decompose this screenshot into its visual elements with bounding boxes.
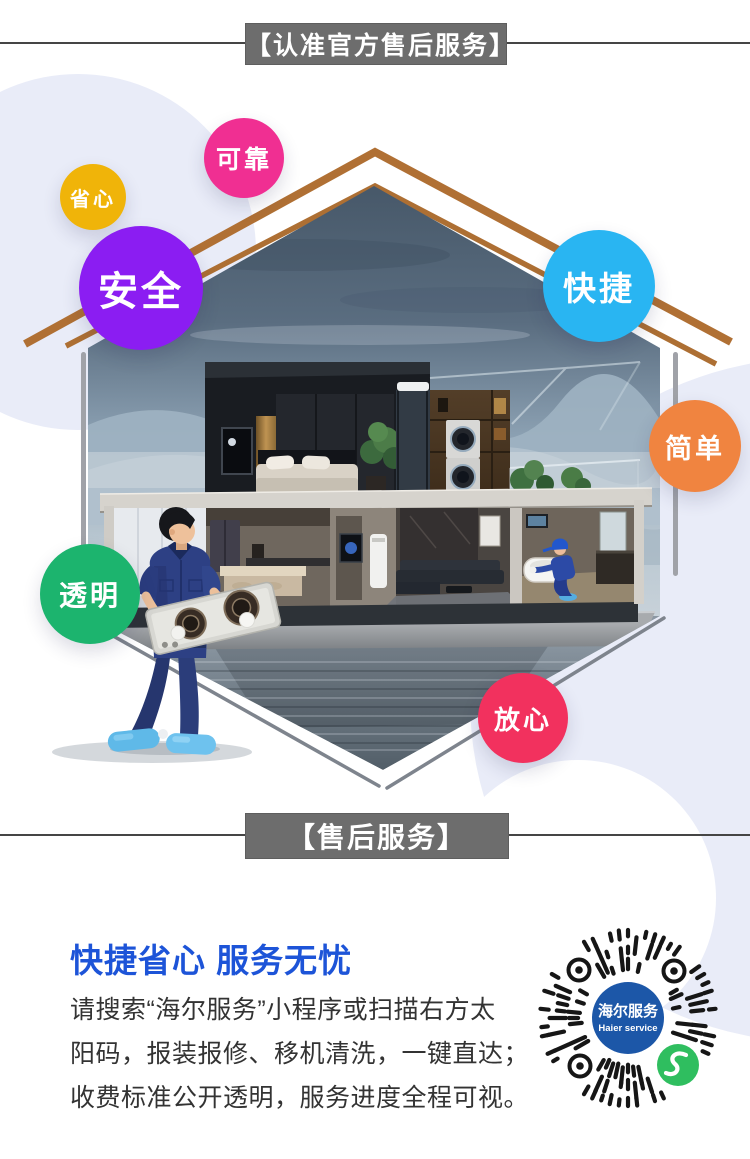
suncode-eye-bottomleft: [570, 1056, 591, 1077]
top-rule-right: [505, 42, 750, 44]
suncode-eye-topleft: [569, 960, 590, 981]
suncode-brand-cn: 海尔服务: [598, 1002, 659, 1020]
washer-stack: [446, 420, 480, 496]
badge-shengxin: 省心: [60, 164, 126, 230]
air-purifier: [370, 534, 387, 588]
bathroom: [522, 508, 636, 608]
bed: [256, 450, 358, 494]
bottom-rule-right: [507, 834, 750, 836]
suncode-brand-en: Haier service: [598, 1023, 657, 1034]
living-room: [386, 508, 520, 608]
laundry-cabinet: [430, 390, 510, 496]
badge-touming: 透明: [40, 544, 140, 644]
top-rule-left: [0, 42, 245, 44]
badge-kuaijie: 快捷: [543, 230, 655, 342]
left-edge-bar: [81, 352, 86, 576]
bottom-rule-left: [0, 834, 245, 836]
badge-kekao: 可靠: [204, 118, 284, 198]
paragraph-line: 收费标准公开透明，服务进度全程可视。: [70, 1076, 529, 1120]
badge-jiandan: 简单: [649, 400, 741, 492]
air-conditioner: [397, 382, 429, 391]
promo-page: 【认准官方售后服务】 【售后服务】 省心 可靠 安全 快捷 简单 透明 放心 快…: [0, 0, 750, 1159]
wechat-icon: [657, 1044, 699, 1086]
mini-program-sun-code: 海尔服务 Haier service: [535, 926, 725, 1116]
bottom-banner: 【售后服务】: [245, 813, 509, 859]
top-banner: 【认准官方售后服务】: [245, 23, 507, 65]
badge-fangxin: 放心: [478, 673, 568, 763]
glass-door: [396, 382, 430, 494]
bedroom-tv: [222, 428, 252, 474]
section-heading: 快捷省心 服务无忧: [70, 934, 352, 982]
hallway: [330, 508, 396, 608]
badge-anquan: 安全: [79, 226, 203, 350]
paragraph-line: 阳码，报装报修、移机清洗，一键直达；: [70, 1032, 529, 1076]
paragraph-line: 请搜索“海尔服务”小程序或扫描右方太: [70, 988, 529, 1032]
suncode-eye-topright: [664, 961, 685, 982]
section-paragraph: 请搜索“海尔服务”小程序或扫描右方太 阳码，报装报修、移机清洗，一键直达； 收费…: [70, 988, 529, 1120]
